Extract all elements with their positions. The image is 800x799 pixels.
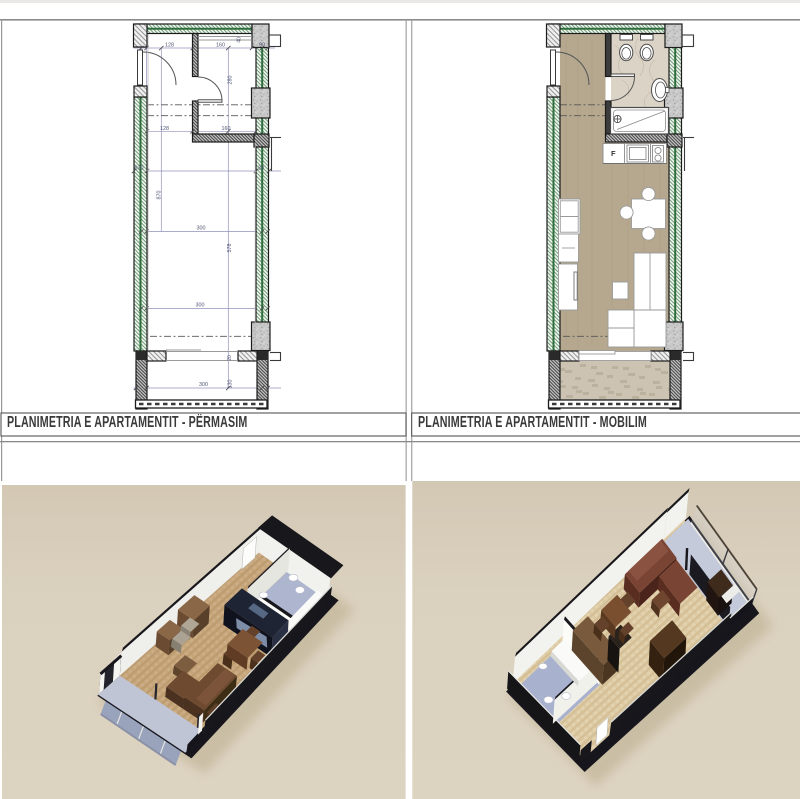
svg-text:20: 20 xyxy=(227,355,233,361)
svg-text:130: 130 xyxy=(228,380,234,389)
svg-text:300: 300 xyxy=(197,226,206,232)
svg-text:280: 280 xyxy=(228,76,234,85)
svg-text:870: 870 xyxy=(157,191,163,200)
svg-text:160: 160 xyxy=(216,43,225,49)
svg-text:40: 40 xyxy=(237,37,243,43)
svg-text:300: 300 xyxy=(196,303,205,309)
svg-text:F: F xyxy=(611,149,616,158)
svg-text:128: 128 xyxy=(165,43,174,49)
svg-text:128: 128 xyxy=(160,126,169,132)
svg-text:90: 90 xyxy=(259,43,265,49)
svg-text:630: 630 xyxy=(135,166,144,172)
svg-text:300: 300 xyxy=(199,382,208,388)
svg-text:160: 160 xyxy=(222,126,231,132)
svg-text:578: 578 xyxy=(227,244,233,253)
svg-text:30: 30 xyxy=(258,166,264,172)
